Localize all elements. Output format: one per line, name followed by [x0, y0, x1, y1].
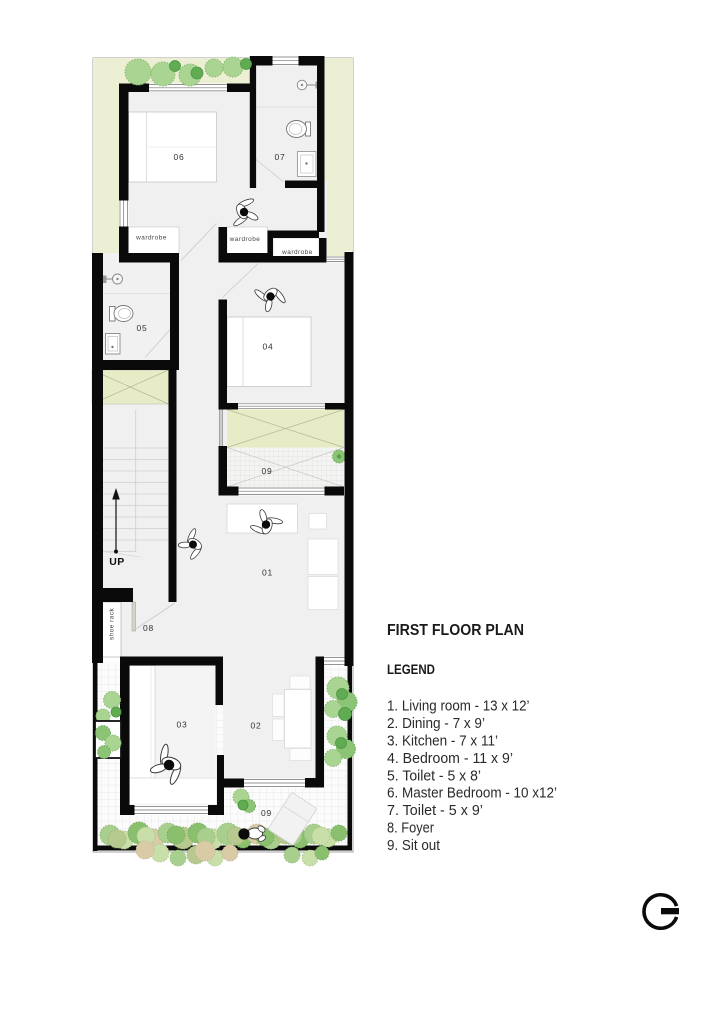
svg-text:09: 09: [261, 808, 272, 818]
svg-text:04: 04: [262, 342, 273, 352]
svg-text:LEGEND: LEGEND: [387, 661, 435, 677]
svg-text:1. Living room - 13 x 12’: 1. Living room - 13 x 12’: [387, 699, 530, 715]
svg-text:03: 03: [176, 720, 187, 730]
svg-text:3. Kitchen - 7 x 11’: 3. Kitchen - 7 x 11’: [387, 733, 498, 749]
svg-text:wardrobe: wardrobe: [281, 249, 313, 256]
svg-text:6. Master Bedroom - 10 x12’: 6. Master Bedroom - 10 x12’: [387, 786, 557, 802]
svg-text:7. Toilet - 5 x 9’: 7. Toilet - 5 x 9’: [387, 803, 483, 819]
svg-text:02: 02: [250, 721, 261, 731]
svg-text:08: 08: [143, 623, 154, 633]
svg-text:05: 05: [136, 323, 147, 333]
svg-text:9. Sit out: 9. Sit out: [387, 838, 440, 854]
svg-text:01: 01: [262, 568, 273, 578]
svg-text:UP: UP: [109, 556, 124, 568]
svg-text:06: 06: [173, 152, 184, 162]
svg-text:wardrobe: wardrobe: [135, 235, 167, 242]
svg-text:09: 09: [261, 466, 272, 476]
svg-text:4. Bedroom - 11 x 9’: 4. Bedroom - 11 x 9’: [387, 751, 513, 767]
svg-text:07: 07: [274, 152, 285, 162]
svg-text:shoe rack: shoe rack: [109, 607, 116, 640]
svg-text:FIRST FLOOR PLAN: FIRST FLOOR PLAN: [387, 622, 524, 639]
svg-text:2. Dining - 7 x 9’: 2. Dining - 7 x 9’: [387, 716, 485, 732]
svg-text:wardrobe: wardrobe: [229, 236, 261, 243]
svg-text:8. Foyer: 8. Foyer: [387, 821, 434, 837]
svg-text:5. Toilet - 5 x 8’: 5. Toilet - 5 x 8’: [387, 768, 481, 784]
